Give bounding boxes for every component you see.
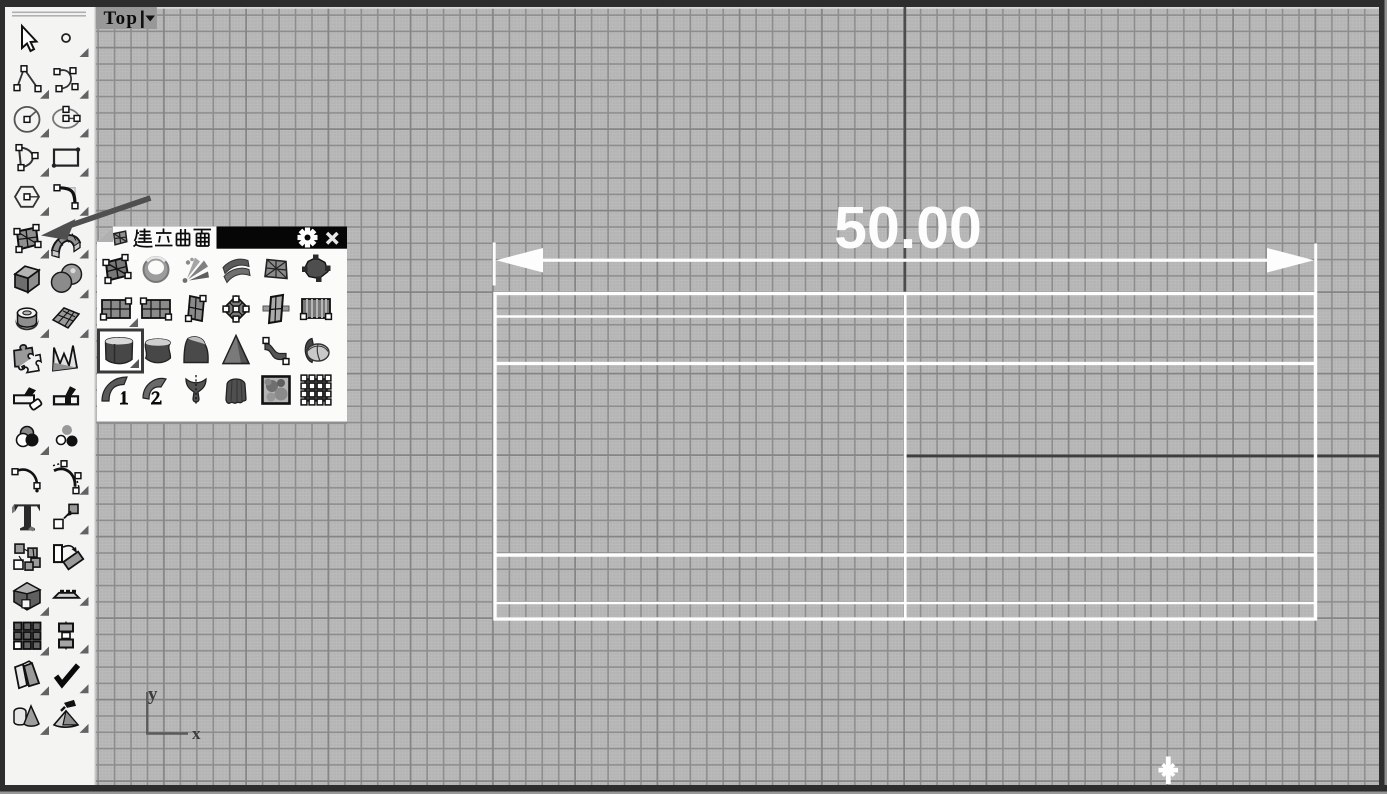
svg-text:x: x	[192, 724, 201, 743]
svg-text:y: y	[148, 684, 158, 705]
svg-text:50.00: 50.00	[834, 195, 982, 261]
svg-text:Top: Top	[104, 8, 139, 29]
